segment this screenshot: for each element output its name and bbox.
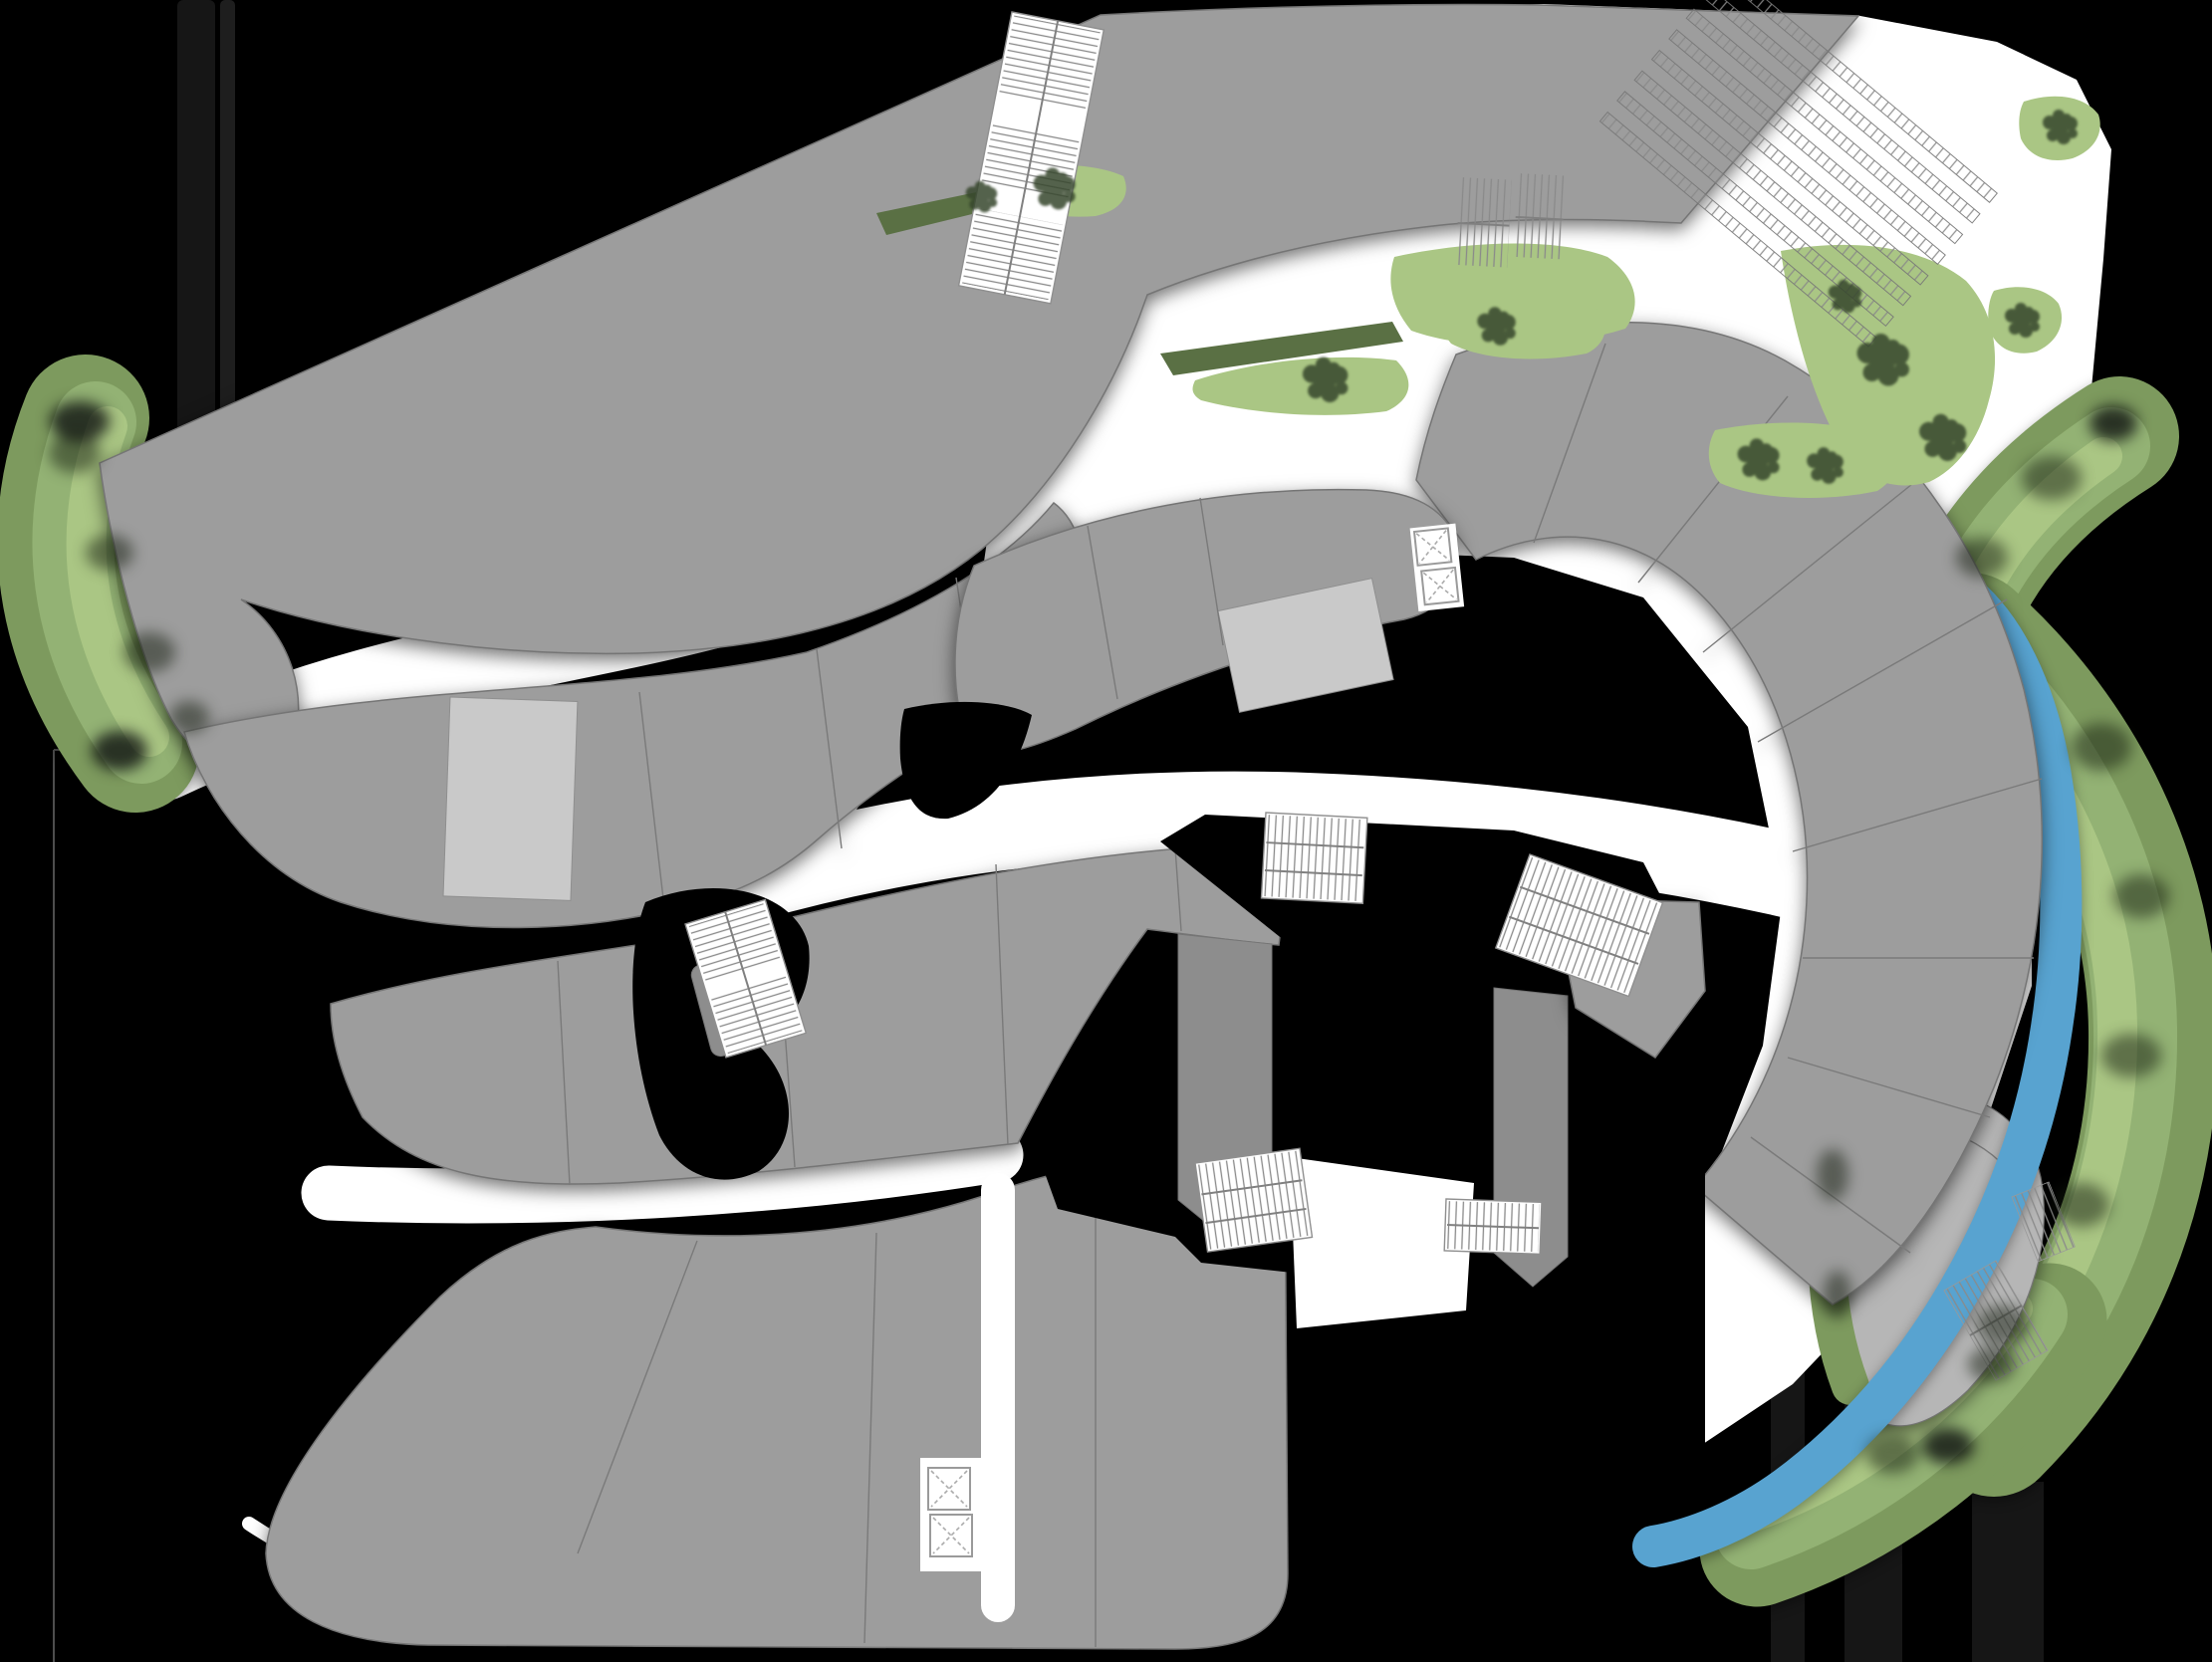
site-plan-canvas [0, 0, 2212, 1662]
stair-plaza-a [1455, 177, 1512, 268]
anchor-unit [443, 697, 578, 900]
road-strip [177, 0, 215, 456]
floor-plan-map [0, 0, 2212, 1662]
road-strip [1972, 1482, 2044, 1662]
escalator-bank-nw [1261, 813, 1366, 903]
elevator-pair-east [1410, 524, 1465, 611]
escalator-bank-sw [1195, 1148, 1312, 1252]
stair-plaza-b [1514, 173, 1566, 259]
road-strip [220, 0, 235, 450]
escalator-bank-se [1444, 1199, 1542, 1254]
